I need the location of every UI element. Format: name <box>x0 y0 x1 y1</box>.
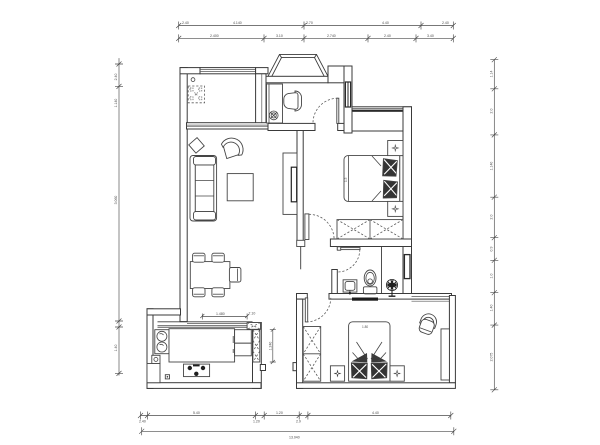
svg-text:2.70: 2.70 <box>306 21 313 25</box>
svg-text:3.060: 3.060 <box>114 196 118 205</box>
svg-text:4.40: 4.40 <box>382 21 389 25</box>
svg-text:2.40: 2.40 <box>182 21 189 25</box>
svg-text:2.40: 2.40 <box>442 21 449 25</box>
svg-text:0.9: 0.9 <box>490 247 494 252</box>
svg-text:2.740: 2.740 <box>327 34 336 38</box>
svg-text:1.240: 1.240 <box>269 342 273 351</box>
svg-text:4.140: 4.140 <box>233 21 242 25</box>
svg-text:4.40: 4.40 <box>372 411 379 415</box>
svg-text:2.400: 2.400 <box>210 34 219 38</box>
svg-text:5.40: 5.40 <box>193 411 200 415</box>
svg-text:1.80: 1.80 <box>362 325 368 329</box>
svg-text:1.40: 1.40 <box>490 305 494 312</box>
svg-text:2.0: 2.0 <box>490 109 494 114</box>
svg-text:1.140: 1.140 <box>114 99 118 108</box>
svg-text:3.10: 3.10 <box>276 34 283 38</box>
svg-text:1.20: 1.20 <box>276 411 283 415</box>
svg-text:1.40: 1.40 <box>114 345 118 352</box>
svg-text:13.040: 13.040 <box>289 436 300 440</box>
svg-text:2.9: 2.9 <box>296 420 301 424</box>
svg-text:2.075: 2.075 <box>490 353 494 362</box>
svg-text:1.5: 1.5 <box>344 177 348 182</box>
svg-text:2.40: 2.40 <box>114 74 118 81</box>
svg-text:1.14: 1.14 <box>490 71 494 78</box>
svg-text:3.40: 3.40 <box>427 34 434 38</box>
svg-text:2.0: 2.0 <box>490 215 494 220</box>
svg-text:1.140: 1.140 <box>490 162 494 171</box>
svg-text:2.40: 2.40 <box>139 420 146 424</box>
svg-text:7.10: 7.10 <box>249 312 256 316</box>
svg-text:1.20: 1.20 <box>253 420 260 424</box>
svg-text:2.40: 2.40 <box>384 34 391 38</box>
svg-text:1.0: 1.0 <box>490 274 494 279</box>
svg-text:1.480: 1.480 <box>216 312 225 316</box>
